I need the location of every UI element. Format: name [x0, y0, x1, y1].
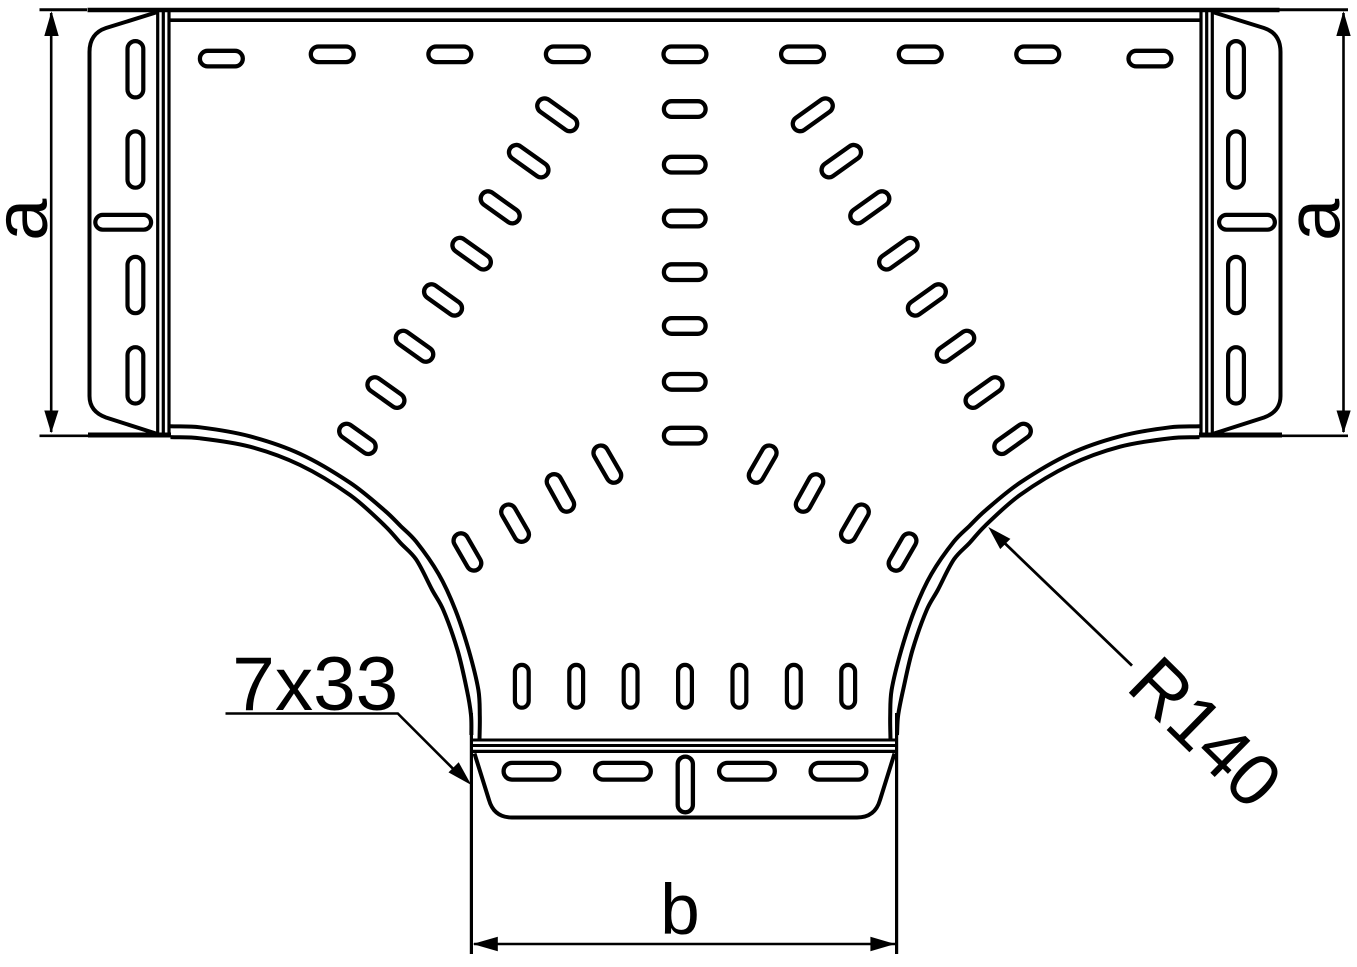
svg-text:a: a: [1272, 198, 1357, 241]
svg-text:b: b: [660, 871, 700, 950]
svg-text:a: a: [0, 198, 64, 241]
svg-text:R140: R140: [1113, 641, 1297, 824]
